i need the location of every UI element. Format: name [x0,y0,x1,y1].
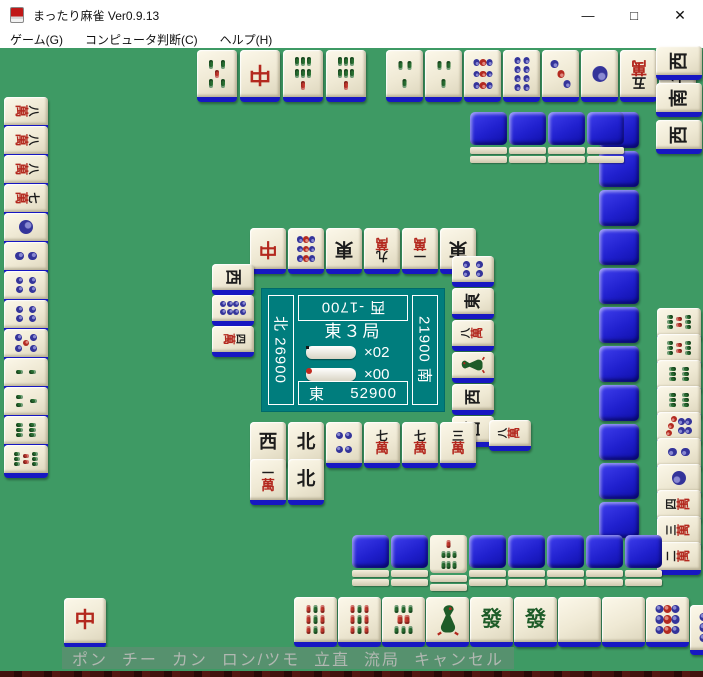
tile-bottom-discards-1-2 [326,422,362,468]
tile-right-discards-1: 東 [452,288,494,319]
bottom-edge-strip [0,671,703,677]
tile-right-wall-2 [599,190,639,226]
tile-right-discards-3 [452,352,494,383]
tile-player-hand-3[interactable] [426,597,469,647]
tile-top-discards-3: 九萬 [364,228,400,274]
tile-right-riichi-0: 八萬 [489,420,531,451]
score-east-value: 52900 [350,385,397,402]
action-5[interactable]: 流局 [364,646,400,670]
tile-top-hand-right-1 [425,50,462,102]
tile-player-hand-4[interactable]: 發 [470,597,513,647]
menu-bar: ゲーム(G)コンピュータ判断(C)ヘルプ(H) [0,30,703,48]
action-bar: ポンチーカンロン/ツモ立直流局キャンセル [62,647,514,669]
score-west-label: 西 -1700 [321,298,386,319]
tile-right-wall-6 [599,346,639,382]
tile-top-discards-0: 中 [250,228,286,274]
tile-right-wall-4 [599,268,639,304]
tile-top-hand-right-5 [581,50,618,102]
tile-player-hand-7[interactable] [602,597,645,647]
tile-bottom-discards-1-3: 七萬 [364,422,400,468]
tile-top-wall-3 [587,112,624,166]
score-east-seat: 東 [309,383,325,404]
tile-top-hand-right-3 [503,50,540,102]
tile-bottom-wall-4 [508,535,545,589]
tile-player-hand-8[interactable] [646,597,689,647]
tile-top-hand-left-1: 中 [240,50,280,102]
app-icon [10,7,24,23]
tile-left-discards-2: 四萬 [212,326,254,357]
tile-bottom-wall-0 [352,535,389,589]
tile-right-discards-2: 八萬 [452,320,494,351]
tile-bottom-wall-5 [547,535,584,589]
action-4[interactable]: 立直 [314,646,350,670]
tile-top-hand-right-4 [542,50,579,102]
tile-top-hand-left-2 [283,50,323,102]
tile-player-hand-5[interactable]: 發 [514,597,557,647]
round-indicator: 東３局 [302,317,404,342]
score-north: 北 26900 [268,295,294,405]
game-table: 北 26900 西 -1700 21900 南 東３局 ×02 ×00 東 52… [0,48,703,677]
tile-top-hand-right-2 [464,50,501,102]
tile-right-wall-8 [599,424,639,460]
tile-player-hand-1[interactable] [338,597,381,647]
tile-top-hand-left-0 [197,50,237,102]
tile-top-discards-1 [288,228,324,274]
tile-right-wall-7 [599,385,639,421]
tile-player-hand-6[interactable] [558,597,601,647]
score-north-label: 北 26900 [271,316,292,384]
app-window: まったり麻雀 Ver0.9.13 — □ ✕ ゲーム(G)コンピュータ判断(C)… [0,0,703,677]
tile-player-hand-0[interactable] [294,597,337,647]
tile-right-discards-0 [452,256,494,287]
tile-right-wall-10 [599,502,639,538]
tile-right-wall-9 [599,463,639,499]
tile-right-meld-1: 南 [656,83,702,117]
maximize-button[interactable]: □ [611,0,657,30]
tile-right-hand-9: 二萬 [657,542,701,575]
tile-right-wall-5 [599,307,639,343]
tile-top-hand-left-3 [326,50,366,102]
menu-item-2[interactable]: ヘルプ(H) [212,30,281,49]
score-south: 21900 南 [412,295,438,405]
tile-player-draw-0[interactable] [690,605,703,655]
menu-item-0[interactable]: ゲーム(G) [2,30,71,49]
tile-right-discards-4: 西 [452,384,494,415]
tile-top-hand-right-6: 五萬 [620,50,657,102]
action-0[interactable]: ポン [72,646,108,670]
tile-top-wall-2 [548,112,585,166]
tile-top-wall-1 [509,112,546,166]
tile-bottom-discards-2-0: 一萬 [250,459,286,505]
score-south-label: 21900 南 [415,316,436,384]
menu-item-1[interactable]: コンピュータ判断(C) [77,30,206,49]
action-1[interactable]: チー [122,646,158,670]
tile-top-wall-0 [470,112,507,166]
window-title: まったり麻雀 Ver0.9.13 [33,7,565,24]
tile-bottom-wall-3 [469,535,506,589]
honba-count: ×02 [364,344,389,361]
tile-bottom-discards-1-4: 七萬 [402,422,438,468]
tile-top-discards-4: 一萬 [402,228,438,274]
tile-right-wall-3 [599,229,639,265]
tile-hand-called-0[interactable]: 中 [64,598,106,648]
tile-bottom-wall-1 [391,535,428,589]
tile-dora-indicator [430,535,467,589]
riichi-stick-icon [306,368,356,381]
action-2[interactable]: カン [172,646,208,670]
minimize-button[interactable]: — [565,0,611,30]
score-panel: 北 26900 西 -1700 21900 南 東３局 ×02 ×00 東 52… [262,289,444,411]
score-east: 東 52900 [298,381,408,405]
tile-bottom-discards-1-5: 三萬 [440,422,476,468]
tile-left-discards-0: 西 [212,264,254,295]
action-6[interactable]: キャンセル [414,646,504,670]
tile-left-hand-12 [4,445,48,478]
close-button[interactable]: ✕ [657,0,703,30]
action-3[interactable]: ロン/ツモ [222,646,300,670]
tile-bottom-discards-2-1: 北 [288,459,324,505]
tile-player-hand-2[interactable] [382,597,425,647]
tile-bottom-wall-6 [586,535,623,589]
tile-top-hand-right-0 [386,50,423,102]
tile-bottom-wall-7 [625,535,662,589]
tile-right-meld-2: 西 [656,120,702,154]
tile-right-meld-0: 西 [656,46,702,80]
hundred-stick-icon [306,346,356,359]
tile-left-discards-1 [212,295,254,326]
title-bar: まったり麻雀 Ver0.9.13 — □ ✕ [0,0,703,30]
honba-counter: ×02 [306,344,389,361]
tile-top-discards-2: 東 [326,228,362,274]
